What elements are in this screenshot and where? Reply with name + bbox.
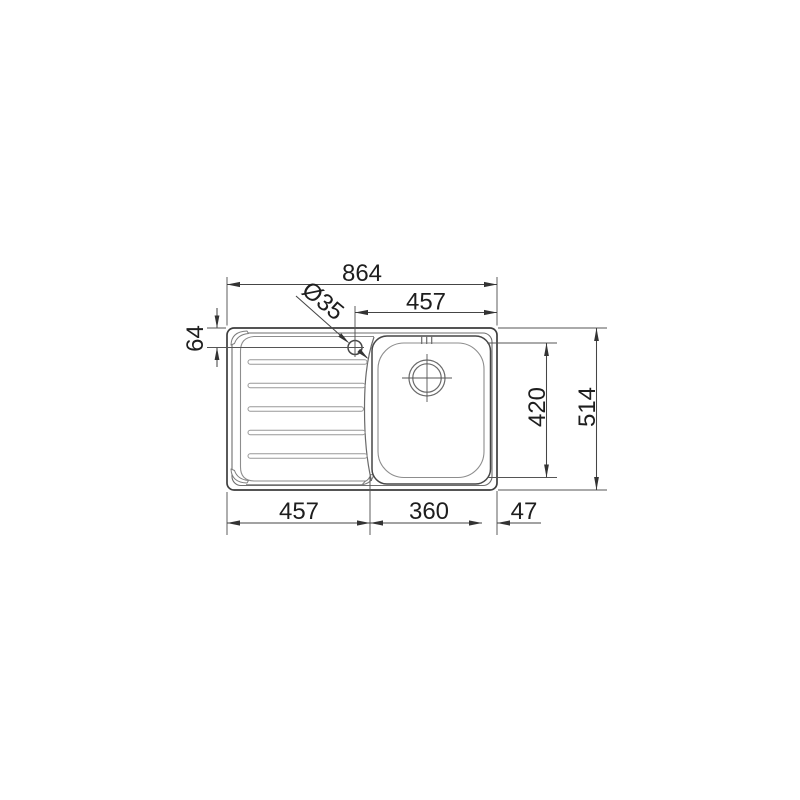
arrowhead: [484, 282, 497, 287]
drawing-canvas: 864 457 Ø35 64 420 514 457 360 47: [0, 0, 800, 800]
arrowhead: [497, 520, 510, 525]
bowl-inner: [378, 343, 484, 478]
arrowhead: [227, 520, 240, 525]
dim-label-overall-width: 864: [342, 260, 382, 287]
arrowhead: [370, 520, 383, 525]
dim-label-hole-to-right: 457: [406, 289, 446, 316]
dim-label-drainer-width: 457: [279, 498, 319, 525]
arrowhead: [215, 348, 220, 361]
drainer-groove: [248, 430, 365, 434]
arrowhead: [355, 310, 368, 315]
arrowhead: [594, 477, 599, 490]
drain: [402, 354, 452, 402]
sink-technical-drawing: 864 457 Ø35 64 420 514 457 360 47: [0, 0, 800, 800]
arrowhead: [484, 310, 497, 315]
arrowhead: [215, 316, 220, 329]
arrowhead: [227, 282, 240, 287]
arrowhead: [594, 328, 599, 341]
arrowhead: [469, 520, 482, 525]
arrowhead: [357, 520, 370, 525]
drainer-groove: [248, 360, 367, 364]
arrowhead: [544, 343, 549, 356]
arrowhead: [544, 465, 549, 478]
bowl-outer: [372, 336, 491, 484]
sink-rim: [232, 333, 492, 486]
drainer-groove: [248, 454, 367, 458]
drainer-corner-top-left: [231, 331, 249, 345]
arrowhead: [338, 333, 349, 343]
dim-label-hole-offset: 64: [182, 325, 209, 352]
drainer-panel: [241, 337, 375, 482]
dim-label-bowl-width: 360: [409, 498, 449, 525]
drainer-grooves: [248, 360, 367, 458]
dim-label-right-margin: 47: [511, 498, 538, 525]
drainer-groove: [248, 383, 365, 387]
dim-label-overall-depth: 514: [574, 387, 601, 427]
drainer-groove: [248, 407, 364, 411]
dim-label-bowl-length: 420: [524, 387, 551, 427]
